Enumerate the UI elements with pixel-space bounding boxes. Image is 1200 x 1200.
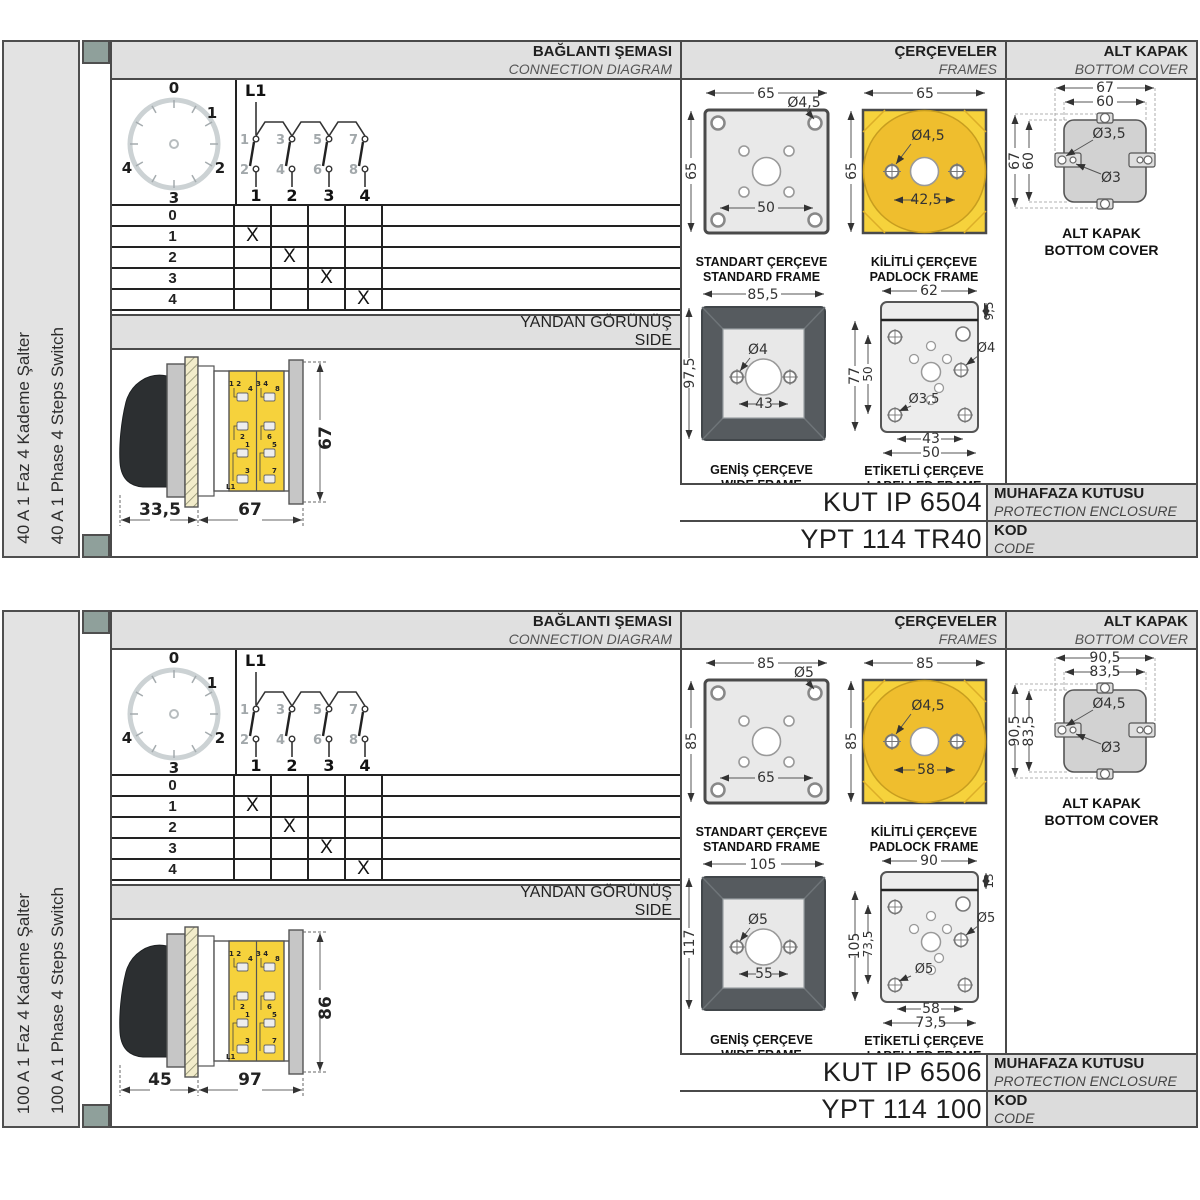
dial-position-0: 0: [169, 80, 179, 97]
cover-header-turkish: ALT KAPAK: [1104, 613, 1188, 630]
dim-side-handle: 33,5: [139, 500, 181, 520]
dim-frame-strip: 13: [982, 873, 996, 888]
mark-cell: X: [346, 290, 383, 309]
enclosure-code-label: MUHAFAZA KUTUSU PROTECTION ENCLOSURE: [986, 485, 1196, 520]
spacer-block: [198, 936, 214, 1066]
table-row: 0: [112, 206, 680, 227]
dim-frame-hole-corner: Ø5: [915, 962, 934, 977]
output-label: 1: [250, 756, 261, 774]
padlock-frame-drawing: 85 85 Ø4,5 58: [843, 650, 1005, 820]
terminal-label: 6: [267, 433, 272, 441]
dial-position-3: 3: [169, 759, 179, 774]
enclosure-code-row: KUT IP 6506 MUHAFAZA KUTUSU PROTECTION E…: [680, 1053, 1196, 1090]
contact-label: 1: [240, 703, 249, 718]
terminal-label: 1 2: [229, 380, 241, 388]
dim-side-length: 67: [238, 500, 262, 520]
mark-cell: [272, 227, 309, 246]
padlock-frame-drawing: 65 65 Ø4,5 42,5: [843, 80, 1005, 250]
output-label: 2: [286, 756, 297, 774]
dim-frame-width: 105: [750, 857, 777, 873]
switch-blades: [250, 142, 363, 166]
padlock-frame-cell: 85 85 Ø4,5 58 KİLİTLİ ÇERÇEVE PADLOCK FR…: [843, 650, 1005, 852]
dim-frame-hole: Ø5: [748, 912, 768, 928]
standard-frame-drawing: 85 Ø5 85 65: [680, 650, 843, 820]
enclosure-code-value: KUT IP 6506: [680, 1055, 986, 1090]
terminal-label: 7: [272, 1037, 277, 1045]
dim-cover-hole-small: Ø3: [1101, 740, 1121, 756]
mark-cell: [235, 269, 272, 288]
dim-frame-hole-corner: Ø3,5: [909, 392, 940, 407]
table-row: 0: [112, 776, 680, 797]
dim-frame-width: 85: [916, 656, 934, 672]
output-label: 1: [250, 186, 261, 204]
center-hole: [911, 728, 939, 756]
frames-header-turkish: ÇERÇEVELER: [894, 613, 997, 630]
rotary-dial-diagram: 0 1 2 3 4: [112, 80, 235, 204]
dim-frame-pitch: 65: [757, 770, 775, 786]
terminal-label: 4: [248, 955, 253, 963]
mark-cell: [272, 206, 309, 225]
dim-frame-hole: Ø4,5: [911, 698, 944, 714]
step-cell: 1: [112, 797, 235, 816]
mark-cell: [309, 797, 346, 816]
collar-plate: [167, 364, 185, 497]
connection-diagram-header: BAĞLANTI ŞEMASI CONNECTION DIAGRAM: [112, 42, 680, 80]
terminal-label: 3: [245, 467, 250, 475]
step-cell: 2: [112, 818, 235, 837]
mark-cell: [272, 839, 309, 858]
enclosure-code-row: KUT IP 6504 MUHAFAZA KUTUSU PROTECTION E…: [680, 483, 1196, 520]
center-hole: [753, 158, 781, 186]
corner-block-bottom: [82, 1104, 110, 1128]
bottom-cover-cell: 90,5 83,5 90,5 83,5 Ø4,5 Ø3 ALT KAPAK BO…: [1007, 650, 1196, 870]
spacer-block: [198, 366, 214, 496]
terminal-label: 1: [245, 441, 250, 449]
product-code-row: YPT 114 100 KOD CODE: [680, 1090, 1196, 1126]
wiring-schematic: L1 1 3: [237, 80, 680, 204]
dim-frame-inner-height: 73,5: [861, 931, 875, 958]
table-row: 4 X: [112, 290, 680, 311]
mark-cell: [235, 818, 272, 837]
wiring-schematic: L1 1 3: [237, 650, 680, 774]
dim-frame-hole: Ø4,5: [787, 95, 820, 111]
bottom-cover-caption-turkish: ALT KAPAK: [1007, 795, 1196, 812]
terminal-label: 5: [272, 1011, 277, 1019]
side-view-header: YANDAN GÖRÜNÜŞ SIDE: [112, 314, 680, 350]
phase-label: L1: [245, 81, 266, 100]
product-name-english: 100 A 1 Phase 4 Steps Switch: [48, 887, 68, 1114]
dial-position-1: 1: [207, 674, 217, 692]
dim-frame-inner-height: 50: [861, 366, 875, 381]
mark-cell: [309, 860, 346, 879]
panel-wall-hatched: [185, 357, 198, 507]
side-view-drawing: 1 2 4 2 3 4 8 6 1 3 L1 5 7: [112, 920, 678, 1126]
side-header-english: SIDE: [635, 332, 672, 350]
mark-cell: [346, 269, 383, 288]
terminal-label: 1 2: [229, 950, 241, 958]
product-name-turkish: 40 A 1 Faz 4 Kademe Şalter: [14, 332, 34, 544]
dim-frame-pitch: 50: [757, 200, 775, 216]
enclosure-label-turkish: MUHAFAZA KUTUSU: [994, 485, 1196, 503]
mark-cell: X: [235, 227, 272, 246]
dim-frame-pitch: 42,5: [910, 192, 941, 208]
mark-cell: [346, 797, 383, 816]
step-cell: 4: [112, 860, 235, 879]
cover-header-turkish: ALT KAPAK: [1104, 43, 1188, 60]
dial-position-2: 2: [215, 729, 225, 747]
mark-cell: [309, 776, 346, 795]
table-row: 1 X: [112, 227, 680, 248]
output-label: 2: [286, 186, 297, 204]
dim-frame-pitch-outer: 73,5: [915, 1015, 946, 1029]
step-contact-table: 0 1 X 2 X: [112, 774, 680, 881]
contact-label: 3: [276, 703, 285, 718]
product-label-strip: 40 A 1 Faz 4 Kademe Şalter 40 A 1 Phase …: [2, 40, 80, 558]
dim-frame-width: 90: [920, 853, 938, 869]
dial-position-3: 3: [169, 189, 179, 204]
dim-cover-inner-height: 60: [1021, 152, 1037, 170]
bottom-cover-header: ALT KAPAK BOTTOM COVER: [1005, 42, 1196, 80]
product-code-value: YPT 114 100: [680, 1092, 986, 1126]
wide-frame-cell: 105 117 Ø5 55 GENİŞ ÇERÇEVE WIDE FRAME: [680, 852, 843, 1055]
labelled-frame-drawing: 90 13 105 73,5 Ø5 Ø5 58 73,5: [843, 852, 1005, 1029]
standard-frame-drawing: 65 Ø4,5 65 50: [680, 80, 843, 250]
step-cell: 4: [112, 290, 235, 309]
wide-frame-drawing: 85,5 97,5 Ø4 43: [680, 282, 843, 458]
mark-cell: [309, 248, 346, 267]
connection-header-turkish: BAĞLANTI ŞEMASI: [533, 43, 672, 60]
bottom-cover-drawing: 67 60 67 60 Ø3,5 Ø3: [1007, 80, 1196, 220]
wide-frame-caption-turkish: GENİŞ ÇERÇEVE: [680, 463, 843, 478]
table-row: 3 X: [112, 269, 680, 290]
mark-cell: [272, 776, 309, 795]
enclosure-code-value: KUT IP 6504: [680, 485, 986, 520]
phase-label: L1: [245, 651, 266, 670]
corner-block-top: [82, 40, 110, 64]
dial-position-4: 4: [122, 159, 132, 177]
product-code-label: KOD CODE: [986, 1092, 1196, 1126]
step-cell: 0: [112, 206, 235, 225]
bottom-cover-caption-turkish: ALT KAPAK: [1007, 225, 1196, 242]
bottom-cover-drawing: 90,5 83,5 90,5 83,5 Ø4,5 Ø3: [1007, 650, 1196, 790]
center-hole: [746, 359, 782, 395]
mark-cell: [346, 776, 383, 795]
standard-frame-cell: 85 Ø5 85 65 STANDART ÇERÇEVE STANDARD FR…: [680, 650, 843, 852]
mark-cell: X: [309, 839, 346, 858]
center-hole: [922, 933, 941, 952]
dim-frame-pitch: 58: [917, 762, 935, 778]
terminal-label: 8: [275, 385, 280, 393]
mark-cell: X: [272, 818, 309, 837]
terminal-label: 6: [267, 1003, 272, 1011]
code-label-turkish: KOD: [994, 522, 1196, 540]
corner-block-top: [82, 610, 110, 634]
mark-cell: X: [346, 860, 383, 879]
contact-label: 8: [349, 163, 358, 178]
dim-frame-pitch: 55: [755, 966, 773, 982]
center-hole: [922, 363, 941, 382]
mark-cell: [346, 206, 383, 225]
product-name-turkish: 100 A 1 Faz 4 Kademe Şalter: [14, 893, 34, 1114]
mark-cell: [346, 839, 383, 858]
enclosure-label-english: PROTECTION ENCLOSURE: [994, 503, 1196, 520]
enclosure-label-english: PROTECTION ENCLOSURE: [994, 1073, 1196, 1090]
side-header-turkish: YANDAN GÖRÜNÜŞ: [520, 884, 672, 902]
terminal-label: L1: [226, 1053, 235, 1061]
contact-label: 2: [240, 733, 249, 748]
product-code-value: YPT 114 TR40: [680, 522, 986, 556]
dim-cover-inner-height: 83,5: [1021, 715, 1037, 746]
product-label-strip: 100 A 1 Faz 4 Kademe Şalter 100 A 1 Phas…: [2, 610, 80, 1128]
frames-header: ÇERÇEVELER FRAMES: [680, 612, 1005, 650]
switch-side-body: 1 2 4 2 3 4 8 6 1 3 L1 5 7: [120, 927, 303, 1077]
mark-cell: [235, 860, 272, 879]
mark-cell: [272, 290, 309, 309]
mark-cell: [272, 797, 309, 816]
wide-frame-cell: 85,5 97,5 Ø4 43 GENİŞ ÇERÇEVE WIDE FRAME: [680, 282, 843, 485]
terminal-label: 2: [240, 1003, 245, 1011]
mark-cell: X: [235, 797, 272, 816]
product-code-row: YPT 114 TR40 KOD CODE: [680, 520, 1196, 556]
table-row: 4 X: [112, 860, 680, 881]
product-panel: 100 A 1 Faz 4 Kademe Şalter 100 A 1 Phas…: [0, 610, 1198, 1128]
dim-frame-height: 85: [684, 732, 700, 750]
mark-cell: [346, 227, 383, 246]
terminal-label: 4: [248, 385, 253, 393]
terminal-label: 5: [272, 441, 277, 449]
contact-label: 1: [240, 133, 249, 148]
product-code-label: KOD CODE: [986, 522, 1196, 556]
mark-cell: [309, 206, 346, 225]
code-label-english: CODE: [994, 540, 1196, 557]
panel-wall-hatched: [185, 927, 198, 1077]
code-label-turkish: KOD: [994, 1092, 1196, 1110]
connection-header-turkish: BAĞLANTI ŞEMASI: [533, 613, 672, 630]
dim-cover-inner-width: 83,5: [1089, 664, 1120, 680]
padlock-frame-cell: 65 65 Ø4,5 42,5 KİLİTLİ ÇERÇEVE PADLOCK …: [843, 80, 1005, 282]
terminal-label: 8: [275, 955, 280, 963]
contact-label: 8: [349, 733, 358, 748]
standard-frame-cell: 65 Ø4,5 65 50 STANDART ÇERÇEVE STANDARD …: [680, 80, 843, 282]
center-hole: [753, 728, 781, 756]
dim-frame-width: 85,5: [747, 287, 778, 303]
wide-frame-caption-turkish: GENİŞ ÇERÇEVE: [680, 1033, 843, 1048]
contact-label: 4: [276, 733, 285, 748]
datasheet-body: BAĞLANTI ŞEMASI CONNECTION DIAGRAM ÇERÇE…: [110, 610, 1198, 1128]
dim-frame-height: 97,5: [682, 357, 698, 388]
step-cell: 0: [112, 776, 235, 795]
dim-frame-height: 117: [682, 930, 698, 957]
dim-cover-hole-big: Ø4,5: [1092, 696, 1125, 712]
contact-label: 7: [349, 703, 358, 718]
mark-cell: [272, 860, 309, 879]
labelled-frame-cell: 62 9,5 77 50 Ø4 Ø3,5 43 50 ETİKETLİ ÇERÇ…: [843, 282, 1005, 485]
contact-label: 5: [313, 703, 322, 718]
contact-label: 3: [276, 133, 285, 148]
output-label: 4: [359, 186, 370, 204]
standard-frame-caption-turkish: STANDART ÇERÇEVE: [680, 825, 843, 840]
table-row: 2 X: [112, 818, 680, 839]
mark-cell: [309, 290, 346, 309]
frames-header-english: FRAMES: [939, 61, 997, 77]
step-cell: 3: [112, 269, 235, 288]
handle-shape: [120, 375, 167, 487]
product-panel: 40 A 1 Faz 4 Kademe Şalter 40 A 1 Phase …: [0, 40, 1198, 558]
dim-cover-hole-big: Ø3,5: [1092, 126, 1125, 142]
dim-frame-height: 65: [684, 162, 700, 180]
rotary-dial-diagram: 0 1 2 3 4: [112, 650, 235, 774]
dim-frame-height: 85: [844, 732, 860, 750]
mark-cell: [272, 269, 309, 288]
end-plate: [289, 360, 303, 504]
mark-cell: [235, 248, 272, 267]
standard-frame-caption-turkish: STANDART ÇERÇEVE: [680, 255, 843, 270]
dial-position-0: 0: [169, 650, 179, 667]
dim-frame-hole: Ø4: [748, 342, 768, 358]
side-view-header: YANDAN GÖRÜNÜŞ SIDE: [112, 884, 680, 920]
frames-header-english: FRAMES: [939, 631, 997, 647]
dim-side-handle: 45: [148, 1070, 172, 1090]
end-plate: [289, 930, 303, 1074]
side-header-english: SIDE: [635, 902, 672, 920]
bottom-cover-header: ALT KAPAK BOTTOM COVER: [1005, 612, 1196, 650]
corner-block-bottom: [82, 534, 110, 558]
terminal-label: 1: [245, 1011, 250, 1019]
wide-frame-drawing: 105 117 Ø5 55: [680, 852, 843, 1028]
table-row: 1 X: [112, 797, 680, 818]
dim-frame-pitch-outer: 50: [922, 445, 940, 459]
mark-cell: [235, 839, 272, 858]
labelled-frame-caption-turkish: ETİKETLİ ÇERÇEVE: [843, 1034, 1005, 1049]
dim-frame-hole: Ø4,5: [911, 128, 944, 144]
cover-header-english: BOTTOM COVER: [1075, 61, 1188, 77]
labelled-frame-caption-turkish: ETİKETLİ ÇERÇEVE: [843, 464, 1005, 479]
dial-position-2: 2: [215, 159, 225, 177]
cover-header-english: BOTTOM COVER: [1075, 631, 1188, 647]
output-label: 4: [359, 756, 370, 774]
table-row: 3 X: [112, 839, 680, 860]
mark-cell: [235, 290, 272, 309]
padlock-frame-caption-turkish: KİLİTLİ ÇERÇEVE: [843, 825, 1005, 840]
collar-plate: [167, 934, 185, 1067]
dim-frame-hole-side: Ø4: [977, 341, 996, 356]
bottom-cover-caption-english: BOTTOM COVER: [1007, 812, 1196, 829]
enclosure-label-turkish: MUHAFAZA KUTUSU: [994, 1055, 1196, 1073]
frames-header-turkish: ÇERÇEVELER: [894, 43, 997, 60]
terminal-label: 7: [272, 467, 277, 475]
dim-side-height: 67: [316, 426, 336, 450]
enclosure-code-label: MUHAFAZA KUTUSU PROTECTION ENCLOSURE: [986, 1055, 1196, 1090]
contact-label: 7: [349, 133, 358, 148]
contact-label: 5: [313, 133, 322, 148]
side-header-turkish: YANDAN GÖRÜNÜŞ: [520, 314, 672, 332]
terminal-label: 3: [245, 1037, 250, 1045]
bottom-cover-cell: 67 60 67 60 Ø3,5 Ø3 ALT KAPAK BOTTOM COV…: [1007, 80, 1196, 300]
dim-frame-strip: 9,5: [982, 301, 996, 320]
mark-cell: [309, 818, 346, 837]
dim-frame-width: 62: [920, 283, 938, 299]
terminal-label: L1: [226, 483, 235, 491]
dim-side-height: 86: [316, 996, 336, 1020]
side-view-drawing: 1 2 4 2 3 4 8 6 1 3 L1 5 7: [112, 350, 678, 556]
table-row: 2 X: [112, 248, 680, 269]
connection-header-english: CONNECTION DIAGRAM: [509, 61, 672, 77]
mark-cell: [346, 818, 383, 837]
mark-cell: X: [309, 269, 346, 288]
dim-cover-hole-small: Ø3: [1101, 170, 1121, 186]
connection-diagram-header: BAĞLANTI ŞEMASI CONNECTION DIAGRAM: [112, 612, 680, 650]
labelled-frame-cell: 90 13 105 73,5 Ø5 Ø5 58 73,5 ETİKETLİ ÇE…: [843, 852, 1005, 1055]
padlock-frame-caption-turkish: KİLİTLİ ÇERÇEVE: [843, 255, 1005, 270]
step-cell: 2: [112, 248, 235, 267]
dim-frame-width: 85: [757, 656, 775, 672]
dial-position-1: 1: [207, 104, 217, 122]
step-cell: 3: [112, 839, 235, 858]
contact-label: 2: [240, 163, 249, 178]
dim-frame-width: 65: [916, 86, 934, 102]
code-label-english: CODE: [994, 1110, 1196, 1127]
output-label: 3: [323, 186, 334, 204]
mark-cell: [235, 776, 272, 795]
dim-frame-height: 65: [844, 162, 860, 180]
dim-frame-pitch: 43: [755, 396, 773, 412]
terminal-label: 2: [240, 433, 245, 441]
mark-cell: [346, 248, 383, 267]
catalog-page: 40 A 1 Faz 4 Kademe Şalter 40 A 1 Phase …: [0, 0, 1200, 1200]
product-name-english: 40 A 1 Phase 4 Steps Switch: [48, 327, 68, 544]
dim-frame-width: 65: [757, 86, 775, 102]
contact-label: 6: [313, 163, 322, 178]
step-cell: 1: [112, 227, 235, 246]
dim-frame-hole-side: Ø5: [977, 911, 996, 926]
center-hole: [911, 158, 939, 186]
contact-label: 6: [313, 733, 322, 748]
dim-side-length: 97: [238, 1070, 262, 1090]
bottom-cover-caption-english: BOTTOM COVER: [1007, 242, 1196, 259]
switch-side-body: 1 2 4 2 3 4 8 6 1 3 L1 5 7: [120, 357, 303, 507]
datasheet-body: BAĞLANTI ŞEMASI CONNECTION DIAGRAM ÇERÇE…: [110, 40, 1198, 558]
mark-cell: [235, 206, 272, 225]
labelled-frame-drawing: 62 9,5 77 50 Ø4 Ø3,5 43 50: [843, 282, 1005, 459]
contact-label: 4: [276, 163, 285, 178]
handle-shape: [120, 945, 167, 1057]
mark-cell: [309, 227, 346, 246]
mark-cell: X: [272, 248, 309, 267]
output-label: 3: [323, 756, 334, 774]
terminal-label: 3 4: [256, 950, 268, 958]
step-contact-table: 0 1 X 2 X: [112, 204, 680, 311]
frames-header: ÇERÇEVELER FRAMES: [680, 42, 1005, 80]
terminal-label: 3 4: [256, 380, 268, 388]
dim-cover-inner-width: 60: [1096, 94, 1114, 110]
dial-position-4: 4: [122, 729, 132, 747]
center-hole: [746, 929, 782, 965]
dim-frame-hole: Ø5: [794, 665, 814, 681]
connection-header-english: CONNECTION DIAGRAM: [509, 631, 672, 647]
switch-blades: [250, 712, 363, 736]
